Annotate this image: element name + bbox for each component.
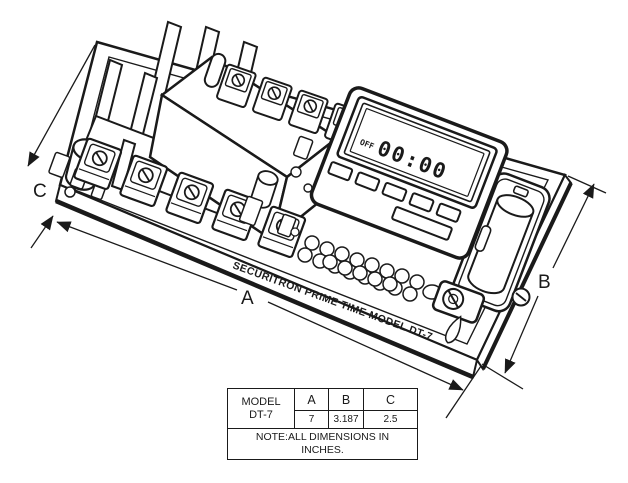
dim-b-label: B — [538, 272, 551, 293]
dim-b-extension-top — [568, 176, 606, 193]
spec-col-header-a: A — [295, 389, 329, 411]
spec-value-b: 3.187 — [329, 411, 364, 428]
spec-col-header-b: B — [329, 389, 364, 411]
spec-model-label: MODEL — [241, 396, 280, 409]
spec-note: NOTE:ALL DIMENSIONS IN INCHES. — [228, 428, 417, 459]
spec-model-value: DT-7 — [249, 409, 273, 422]
spec-value-c: 2.5 — [364, 411, 417, 428]
dim-c-line-bottom — [31, 216, 53, 248]
spec-value-a: 7 — [295, 411, 329, 428]
dim-c-label: C — [33, 181, 47, 202]
corner-screw — [513, 289, 530, 306]
spec-col-header-c: C — [364, 389, 417, 411]
dim-a-label: A — [241, 288, 254, 309]
spec-note-line1: NOTE:ALL DIMENSIONS IN — [228, 431, 417, 444]
technical-drawing-page: OFF 00:00 SECURITRON PRI — [0, 0, 628, 483]
dim-b-extension-bottom — [482, 364, 523, 389]
spec-model-cell: MODEL DT-7 — [228, 389, 295, 428]
spec-table: MODEL DT-7 A B C 7 3.187 2.5 NOTE:ALL DI… — [227, 388, 418, 460]
spec-note-line2: INCHES. — [228, 444, 417, 457]
